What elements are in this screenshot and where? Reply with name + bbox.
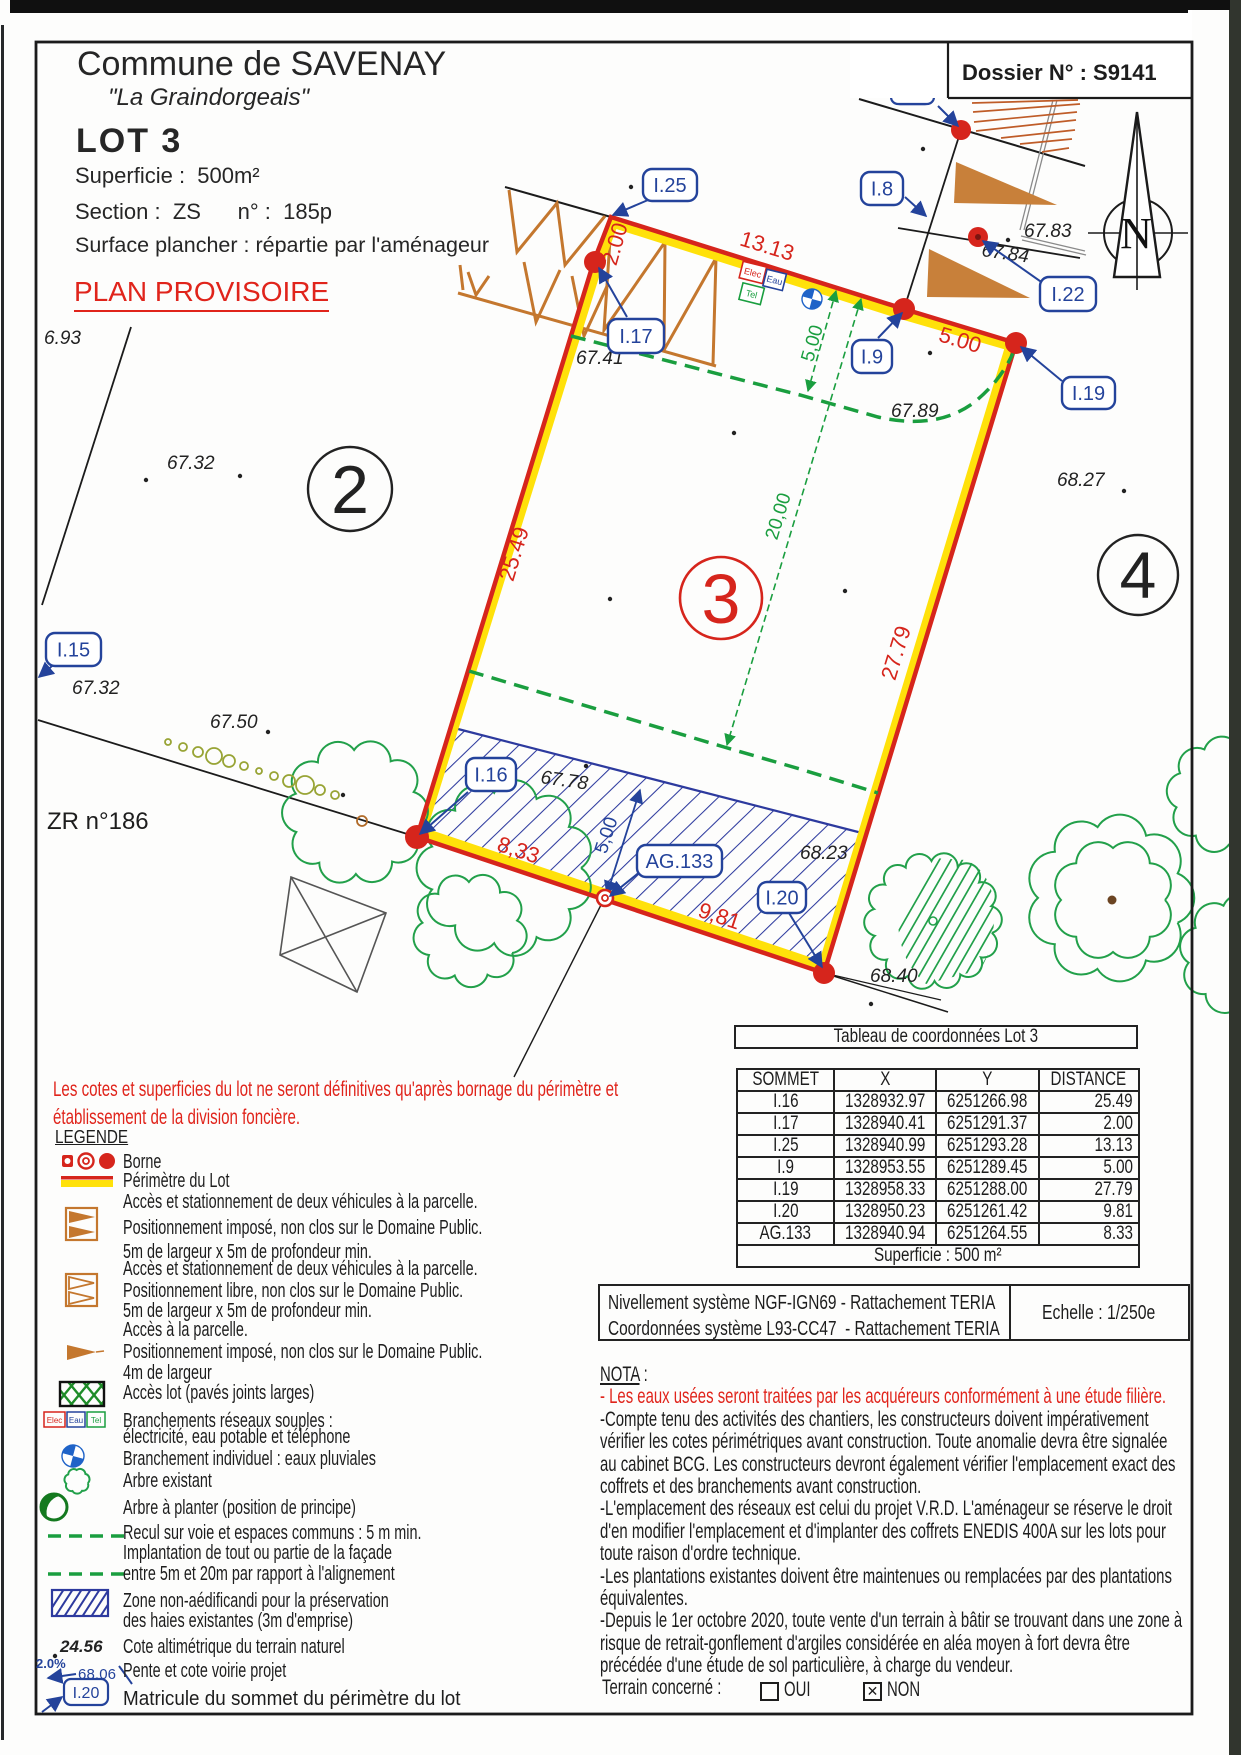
svg-text:68.40: 68.40 bbox=[870, 966, 918, 987]
svg-text:67.50: 67.50 bbox=[210, 712, 258, 733]
svg-text:67.32: 67.32 bbox=[167, 453, 215, 474]
svg-text:67.89: 67.89 bbox=[891, 401, 939, 422]
svg-text:AG.133: AG.133 bbox=[646, 851, 714, 873]
svg-text:67.83: 67.83 bbox=[1024, 221, 1072, 242]
svg-text:Tel: Tel bbox=[91, 1416, 101, 1425]
svg-text:68.23: 68.23 bbox=[800, 843, 848, 864]
svg-text:Elec: Elec bbox=[47, 1416, 63, 1425]
svg-text:I.17: I.17 bbox=[619, 326, 652, 348]
svg-text:68.06: 68.06 bbox=[78, 1666, 116, 1683]
svg-text:2.00: 2.00 bbox=[597, 220, 633, 268]
svg-text:I.9: I.9 bbox=[861, 347, 883, 369]
svg-text:2: 2 bbox=[331, 452, 369, 528]
svg-text:I.15: I.15 bbox=[57, 640, 90, 662]
svg-text:I.20: I.20 bbox=[73, 1685, 100, 1702]
svg-text:I.8: I.8 bbox=[871, 179, 893, 201]
svg-text:N: N bbox=[1120, 209, 1152, 258]
svg-text:25.49: 25.49 bbox=[494, 524, 534, 584]
svg-text:4: 4 bbox=[1120, 538, 1157, 612]
svg-text:67.32: 67.32 bbox=[72, 678, 120, 699]
svg-text:6.93: 6.93 bbox=[44, 328, 81, 349]
svg-text:I.25: I.25 bbox=[653, 175, 686, 197]
svg-text:2.0%: 2.0% bbox=[36, 1656, 66, 1671]
svg-text:24.56: 24.56 bbox=[59, 1637, 103, 1656]
svg-text:I.16: I.16 bbox=[474, 765, 507, 787]
svg-text:68.27: 68.27 bbox=[1057, 470, 1106, 491]
svg-text:I.19: I.19 bbox=[1072, 383, 1105, 405]
svg-text:5.00: 5.00 bbox=[936, 322, 984, 358]
svg-text:Eau: Eau bbox=[69, 1416, 83, 1425]
svg-text:I.22: I.22 bbox=[1051, 284, 1084, 306]
svg-text:3: 3 bbox=[702, 560, 741, 638]
svg-text:I.20: I.20 bbox=[765, 888, 798, 910]
svg-text:5,00: 5,00 bbox=[798, 323, 828, 364]
